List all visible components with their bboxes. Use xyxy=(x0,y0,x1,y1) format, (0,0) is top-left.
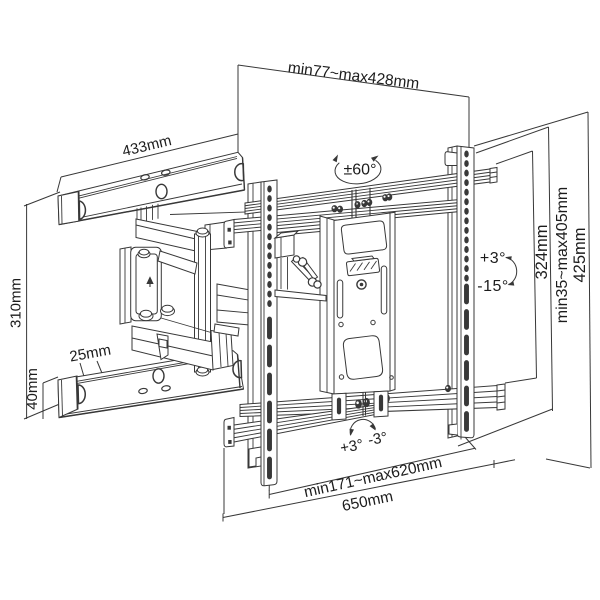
svg-text:310mm: 310mm xyxy=(8,278,25,328)
svg-text:-15°: -15° xyxy=(477,278,509,295)
svg-text:±60°: ±60° xyxy=(344,162,377,179)
svg-text:324mm: 324mm xyxy=(533,224,551,279)
svg-text:+3°: +3° xyxy=(480,250,506,267)
svg-text:40mm: 40mm xyxy=(24,368,41,410)
svg-text:425mm: 425mm xyxy=(571,227,589,282)
svg-text:min35~max405mm: min35~max405mm xyxy=(554,187,571,324)
svg-text:-3°: -3° xyxy=(367,429,389,449)
